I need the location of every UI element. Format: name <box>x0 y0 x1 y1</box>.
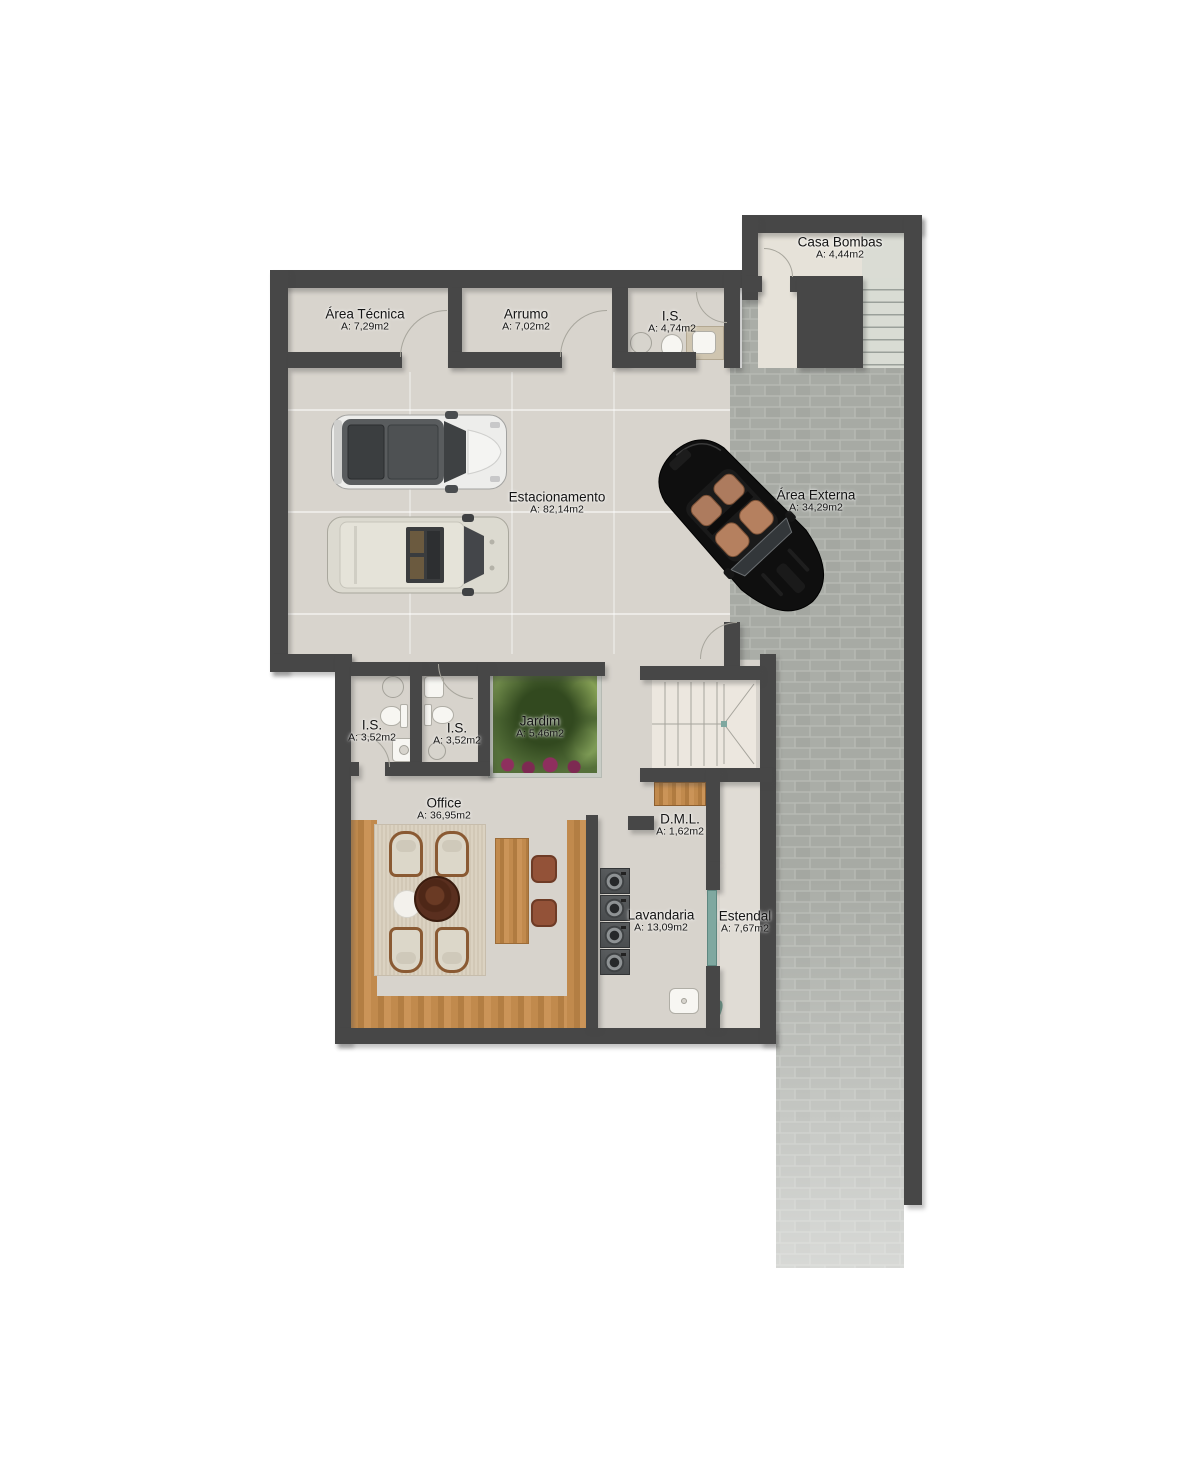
room-label-dml: D.M.L. A: 1,62m2 <box>656 812 704 839</box>
room-label-lavandaria: Lavandaria A: 13,09m2 <box>628 908 695 935</box>
wall <box>335 1028 776 1044</box>
room-name: I.S. <box>648 309 696 324</box>
room-label-office: Office A: 36,95m2 <box>417 796 471 823</box>
room-area: A: 3,52m2 <box>433 736 481 748</box>
wall <box>904 215 922 1205</box>
stool-icon <box>531 899 557 927</box>
washing-machine-icon <box>600 895 630 921</box>
room-label-area-tecnica: Área Técnica A: 7,29m2 <box>325 307 404 334</box>
wall <box>706 768 720 862</box>
beige-suv-car-icon <box>326 514 510 596</box>
wall <box>760 654 776 1044</box>
room-label-estacionamento: Estacionamento A: 82,14m2 <box>509 490 606 517</box>
dining-armchair-icon <box>435 927 469 973</box>
room-label-is-direita: I.S. A: 3,52m2 <box>433 721 481 748</box>
wood-floor-bottom <box>351 996 593 1028</box>
toilet-tank <box>424 704 432 726</box>
laundry-sink-drain <box>681 998 687 1004</box>
room-name: Office <box>417 796 471 811</box>
room-area: A: 3,52m2 <box>348 733 396 745</box>
room-area: A: 13,09m2 <box>628 923 695 935</box>
washing-machine-icon <box>600 868 630 894</box>
wall <box>270 270 288 672</box>
wall <box>797 276 863 368</box>
interior-staircase <box>652 680 756 768</box>
glass-door <box>707 890 717 966</box>
dml-shelf <box>654 782 706 806</box>
wall <box>628 816 654 830</box>
room-area: A: 5,46m2 <box>516 729 564 741</box>
room-name: Casa Bombas <box>798 235 883 250</box>
wall <box>742 215 922 233</box>
room-name: Estendal <box>719 909 772 924</box>
wall <box>478 662 490 775</box>
room-name: D.M.L. <box>656 812 704 827</box>
wall <box>335 654 351 1044</box>
room-area: A: 4,44m2 <box>798 250 883 262</box>
wall <box>706 862 720 890</box>
wall <box>742 276 762 292</box>
desk-icon <box>495 838 529 944</box>
wall <box>385 762 490 776</box>
exterior-staircase <box>862 278 904 368</box>
room-label-estendal: Estendal A: 7,67m2 <box>719 909 772 936</box>
white-suv-car-icon <box>330 410 508 494</box>
room-name: Arrumo <box>502 307 550 322</box>
room-label-jardim: Jardim A: 5,46m2 <box>516 714 564 741</box>
room-area: A: 82,14m2 <box>509 505 606 517</box>
room-name: Lavandaria <box>628 908 695 923</box>
floor-plan: Casa Bombas A: 4,44m2 Área Técnica A: 7,… <box>0 0 1200 1473</box>
stool-icon <box>531 855 557 883</box>
room-name: Área Externa <box>777 488 856 503</box>
room-name: Jardim <box>516 714 564 729</box>
washing-machine-icon <box>600 922 630 948</box>
washing-machine-icon <box>600 949 630 975</box>
room-area: A: 1,62m2 <box>656 827 704 839</box>
parking-line <box>613 372 615 654</box>
wall <box>410 662 422 768</box>
room-label-area-externa: Área Externa A: 34,29m2 <box>777 488 856 515</box>
room-label-casa-bombas: Casa Bombas A: 4,44m2 <box>798 235 883 262</box>
room-name: Estacionamento <box>509 490 606 505</box>
room-area: A: 7,29m2 <box>325 322 404 334</box>
room-area: A: 7,67m2 <box>719 924 772 936</box>
sink-icon <box>382 676 404 698</box>
wall <box>270 270 742 288</box>
room-area: A: 34,29m2 <box>777 503 856 515</box>
dining-armchair-icon <box>389 831 423 877</box>
wall <box>640 666 760 680</box>
wall <box>288 352 402 368</box>
floor-estendal <box>720 782 760 1028</box>
toilet-tank <box>400 704 408 728</box>
dining-armchair-icon <box>389 927 423 973</box>
room-name: Área Técnica <box>325 307 404 322</box>
shower-head-icon <box>399 745 409 755</box>
wall <box>586 815 598 1028</box>
room-area: A: 4,74m2 <box>648 324 696 336</box>
parking-line <box>288 613 730 615</box>
room-area: A: 36,95m2 <box>417 811 471 823</box>
wall <box>612 352 696 368</box>
room-label-is-garagem: I.S. A: 4,74m2 <box>648 309 696 336</box>
room-label-arrumo: Arrumo A: 7,02m2 <box>502 307 550 334</box>
wall <box>448 352 562 368</box>
room-label-is-esquerda: I.S. A: 3,52m2 <box>348 718 396 745</box>
room-name: I.S. <box>433 721 481 736</box>
coffee-table-icon <box>414 876 460 922</box>
room-name: I.S. <box>348 718 396 733</box>
dining-armchair-icon <box>435 831 469 877</box>
wall <box>706 966 720 1028</box>
room-area: A: 7,02m2 <box>502 322 550 334</box>
